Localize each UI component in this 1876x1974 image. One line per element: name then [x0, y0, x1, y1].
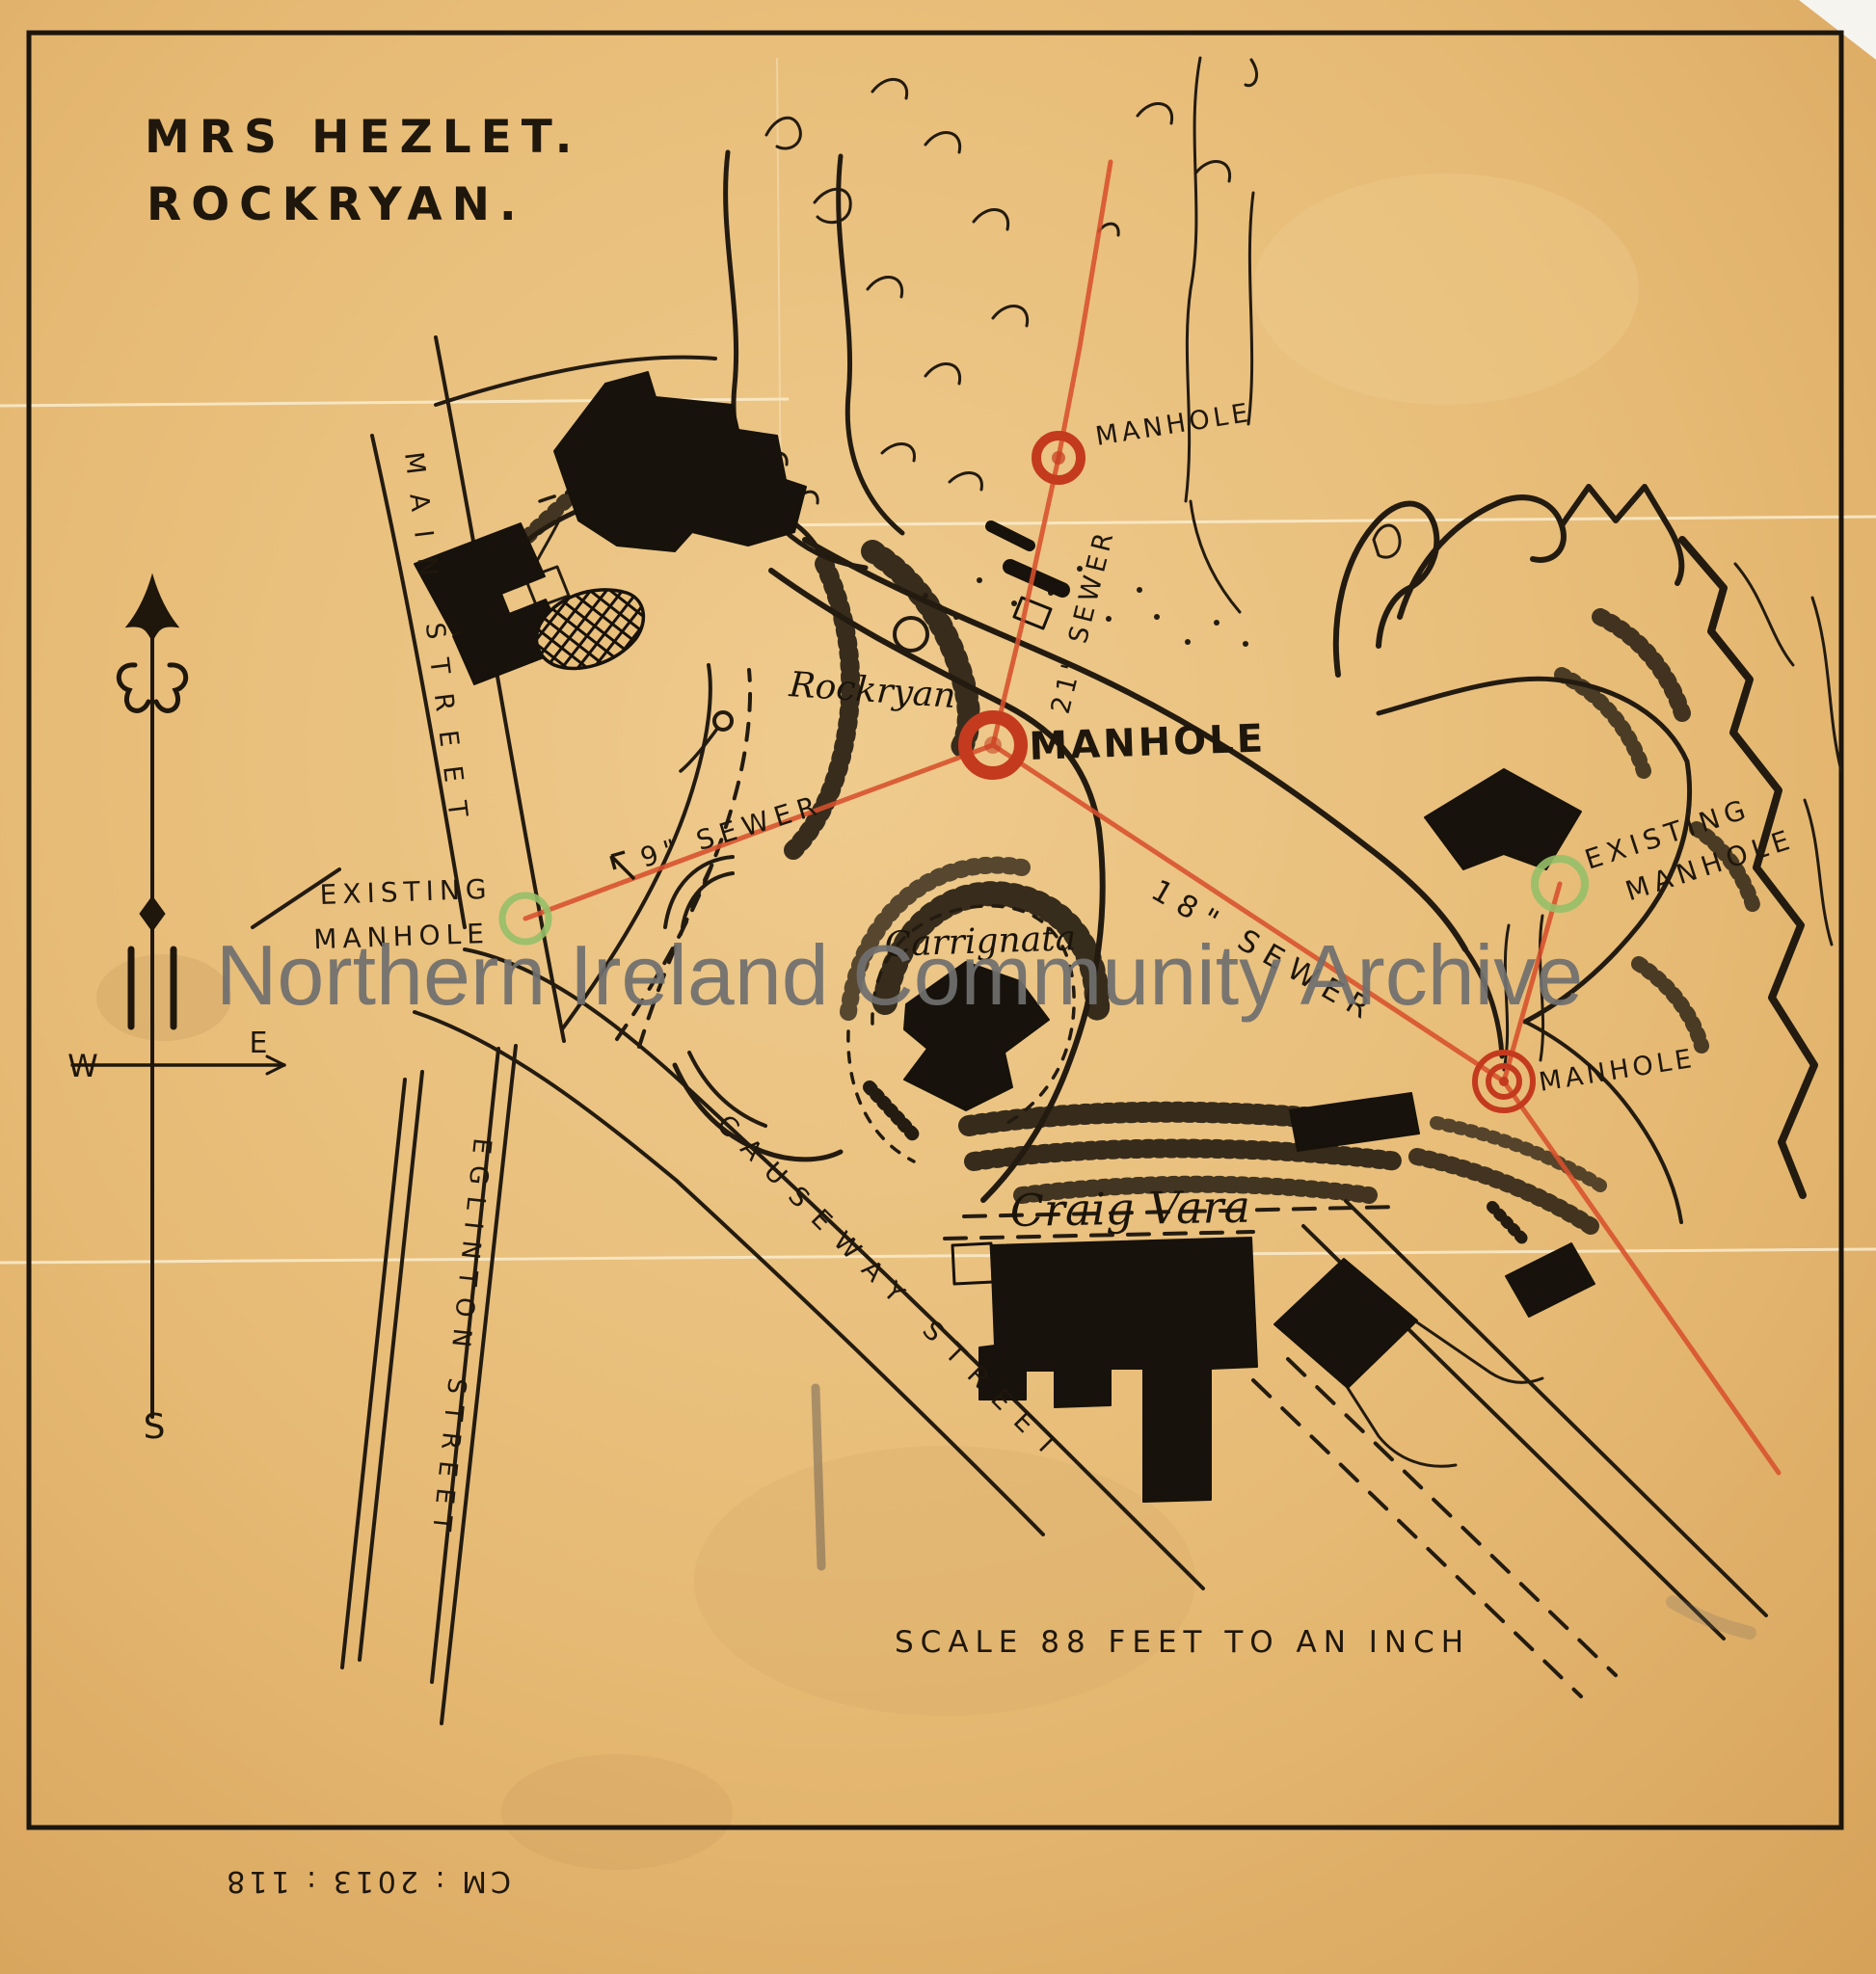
svg-text:CM : 2013 : 118: CM : 2013 : 118	[223, 1864, 511, 1898]
map-title-line2: ROCKRYAN.	[147, 178, 526, 231]
scale-note: SCALE 88 FEET TO AN INCH	[895, 1625, 1470, 1660]
compass-south-label: S	[144, 1407, 166, 1447]
compass-west-label: W	[67, 1048, 98, 1084]
archive-watermark: Northern Ireland Community Archive	[216, 927, 1583, 1023]
place-label-craig-vara: Craig Vara	[1009, 1181, 1250, 1237]
svg-text:EXISTING: EXISTING	[319, 873, 493, 911]
map-drawing: W E S MRS HEZLET. ROCKRYAN. MAIN STREET …	[0, 0, 1876, 1974]
faint-accession-note: CM : 2013 : 118	[223, 1864, 511, 1898]
scanned-map-page: W E S MRS HEZLET. ROCKRYAN. MAIN STREET …	[0, 0, 1876, 1974]
manhole-central-label: MANHOLE	[1029, 716, 1267, 769]
compass-east-label: E	[250, 1027, 268, 1060]
map-title-line1: MRS HEZLET.	[145, 111, 582, 164]
